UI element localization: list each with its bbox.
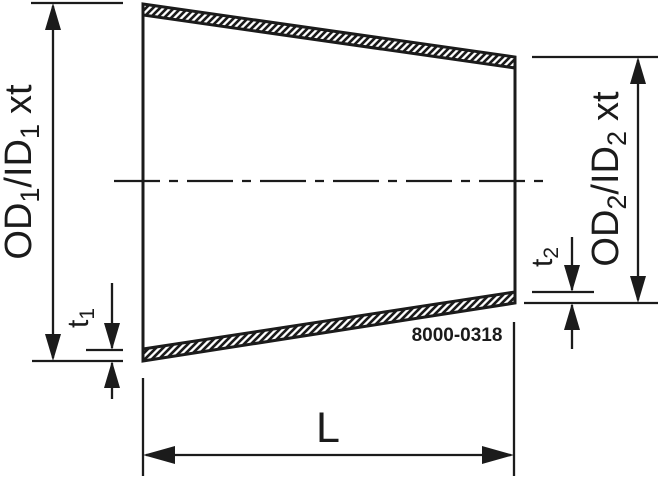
od2-id2-label: OD2/ID2xt <box>585 91 632 267</box>
od2-label-subscript: 2 <box>602 195 632 210</box>
od2-arrow-up-icon <box>630 57 646 84</box>
extension-lines <box>31 3 658 476</box>
od1-label-xt: xt <box>0 84 40 114</box>
od1-arrow-down-icon <box>45 334 61 361</box>
od1-dimension: OD1/ID1xt <box>0 3 61 361</box>
od2-label-main: OD <box>585 210 627 267</box>
t1-label: t1 <box>62 308 99 328</box>
reducer-top-wall-section <box>143 4 515 68</box>
od1-arrow-up-icon <box>45 3 61 30</box>
reducer-technical-drawing: OD1/ID1xt OD2/ID2xt t1 t2 L <box>0 0 659 477</box>
part-number-label: 8000-0318 <box>412 325 503 346</box>
t1-label-subscript: 1 <box>76 308 99 320</box>
id1-label-main: /ID <box>0 139 40 188</box>
t2-label: t2 <box>526 247 563 267</box>
length-dimension: L <box>143 404 514 464</box>
od2-dimension: OD2/ID2xt <box>585 57 646 303</box>
t2-label-subscript: 2 <box>540 247 563 259</box>
od2-label-xt: xt <box>585 91 627 121</box>
od1-label-main: OD <box>0 203 40 260</box>
t1-arrow-down-icon <box>104 323 120 350</box>
id2-label-subscript: 2 <box>602 131 632 146</box>
reducer-body <box>143 4 515 361</box>
t2-arrow-down-icon <box>564 265 580 292</box>
id1-label-subscript: 1 <box>15 124 45 139</box>
t2-arrow-up-icon <box>564 303 580 330</box>
od1-label-subscript: 1 <box>15 188 45 203</box>
t1-arrow-up-icon <box>104 361 120 388</box>
od2-arrow-down-icon <box>630 276 646 303</box>
length-label: L <box>316 404 340 452</box>
length-arrow-right-icon <box>482 446 514 464</box>
length-arrow-left-icon <box>143 446 175 464</box>
id2-label-main: /ID <box>585 146 627 195</box>
od1-id1-label: OD1/ID1xt <box>0 84 45 260</box>
t1-dimension: t1 <box>62 283 120 399</box>
